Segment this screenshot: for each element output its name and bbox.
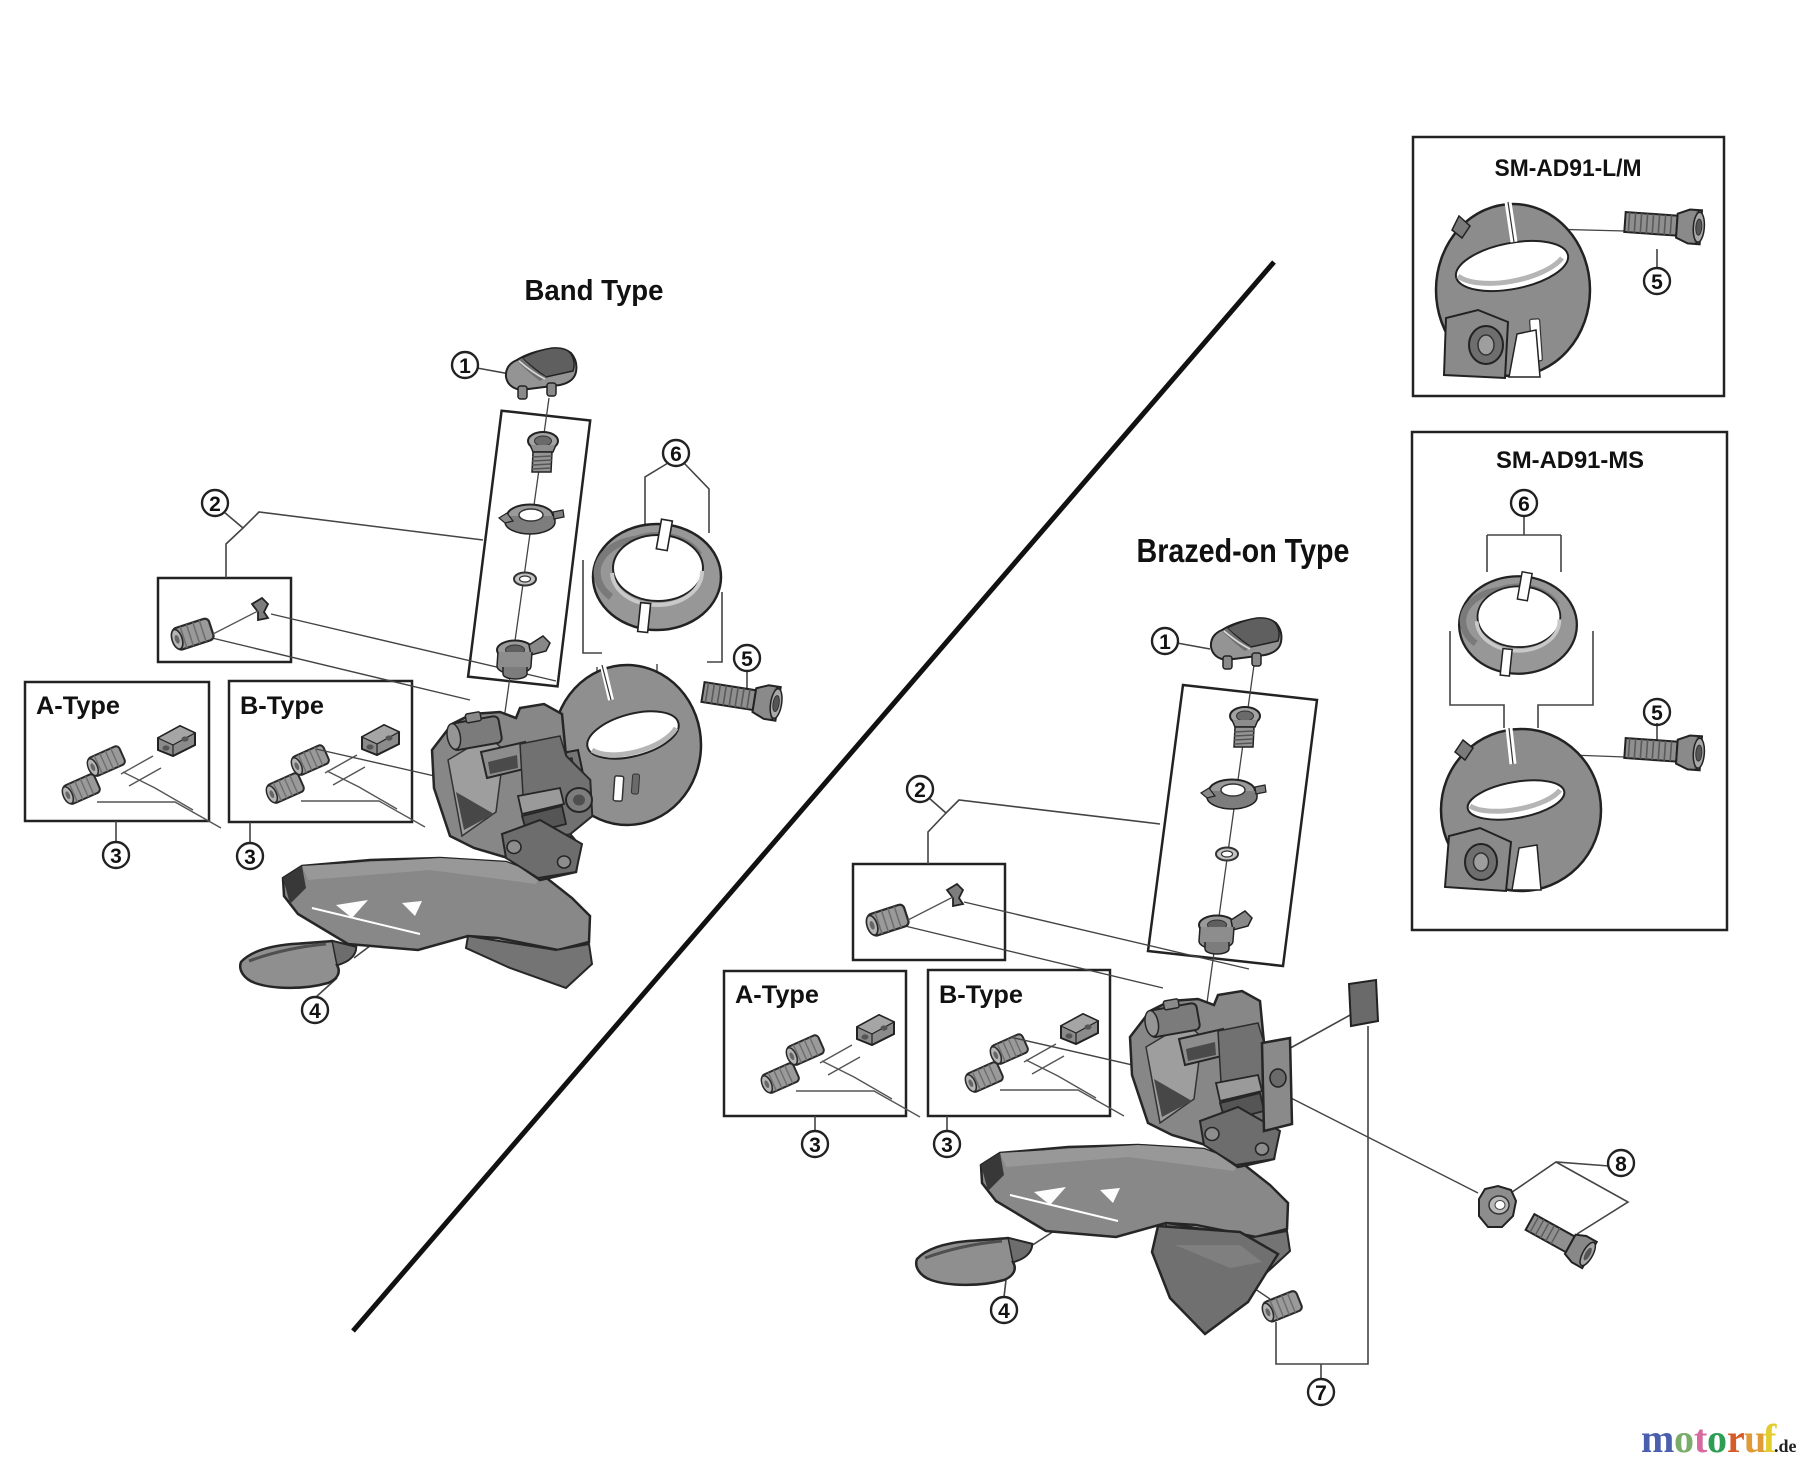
- svg-text:B-Type: B-Type: [240, 692, 324, 720]
- svg-text:t: t: [1694, 1416, 1708, 1461]
- svg-text:1: 1: [459, 355, 471, 378]
- svg-text:5: 5: [1651, 702, 1663, 725]
- svg-text:1: 1: [1159, 631, 1171, 654]
- svg-text:4: 4: [998, 1300, 1010, 1323]
- svg-text:SM-AD91-L/M: SM-AD91-L/M: [1495, 155, 1642, 182]
- svg-text:5: 5: [1651, 271, 1663, 294]
- svg-text:3: 3: [809, 1134, 821, 1157]
- svg-text:2: 2: [914, 779, 926, 802]
- svg-text:A-Type: A-Type: [735, 981, 819, 1009]
- svg-text:3: 3: [941, 1134, 953, 1157]
- svg-text:4: 4: [309, 1000, 321, 1023]
- svg-text:Brazed-on Type: Brazed-on Type: [1137, 532, 1350, 569]
- svg-text:2: 2: [209, 493, 221, 516]
- svg-text:7: 7: [1315, 1382, 1327, 1405]
- svg-text:SM-AD91-MS: SM-AD91-MS: [1496, 447, 1644, 474]
- svg-text:Band Type: Band Type: [525, 275, 664, 307]
- svg-text:r: r: [1727, 1416, 1745, 1461]
- svg-text:3: 3: [244, 846, 256, 869]
- svg-text:.de: .de: [1774, 1436, 1797, 1456]
- svg-text:3: 3: [110, 845, 122, 868]
- svg-text:6: 6: [1518, 493, 1530, 516]
- svg-text:8: 8: [1615, 1153, 1627, 1176]
- svg-text:o: o: [1707, 1416, 1727, 1461]
- svg-text:6: 6: [670, 443, 682, 466]
- svg-text:B-Type: B-Type: [939, 981, 1023, 1009]
- svg-text:o: o: [1674, 1416, 1694, 1461]
- svg-text:5: 5: [741, 648, 753, 671]
- svg-text:m: m: [1641, 1416, 1674, 1461]
- svg-text:A-Type: A-Type: [36, 692, 120, 720]
